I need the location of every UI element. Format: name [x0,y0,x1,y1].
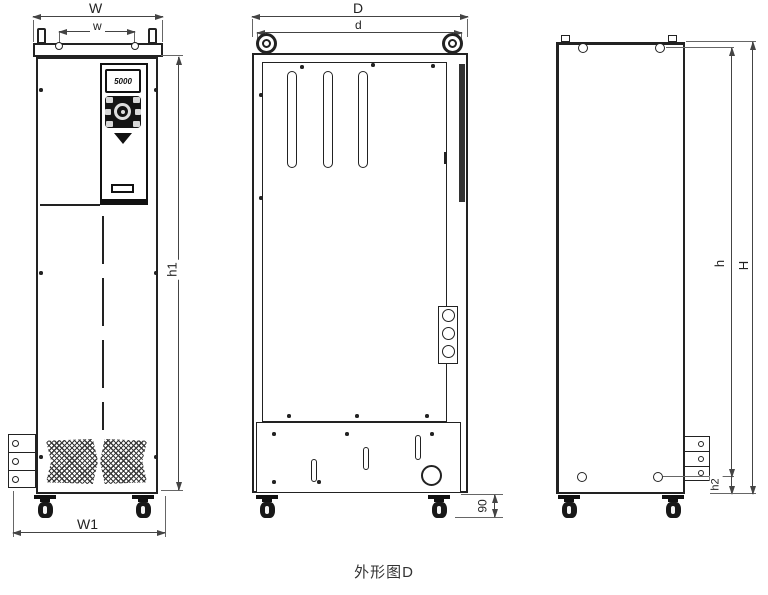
keypad-button [133,97,140,103]
mounting-hole [655,43,665,53]
keypad-button [133,121,140,127]
screw-dot [259,196,263,200]
dim-line-h [731,48,732,477]
dim-label-D: D [350,0,366,16]
dim-extension-line [686,41,756,42]
keypad-panel: 5000 [100,63,148,205]
caster-wheel-icon [130,495,156,519]
dim-extension-line [252,19,253,37]
arrow-right-icon [155,14,164,20]
vent-icon [46,439,98,484]
base-round-hole [421,465,442,486]
bracket-hole [12,440,19,447]
lifting-lug-icon [668,35,677,42]
dim-extension-line [467,19,468,37]
dim-line-W [33,16,163,17]
screw-dot [317,480,321,484]
caster-tire [432,502,447,518]
arrow-up-icon [750,41,756,50]
caster-wheel-icon [254,495,280,519]
rail-hole [131,42,139,50]
lifting-lug-icon [148,28,157,44]
knob-center-dot [121,110,125,114]
gland-hole [442,309,455,322]
arrow-left-icon [251,14,260,20]
screw-dot [39,88,43,92]
screw-dot [371,63,375,67]
caster-hub [671,506,675,514]
dim-label-w: w [90,19,105,33]
arrow-right-icon [460,14,469,20]
screw-dot [425,414,429,418]
arrow-right-icon [127,29,136,35]
caster-hub [437,506,441,514]
dim-line-90 [494,495,495,517]
screw-dot [154,271,158,275]
rear-cabinet-body [556,42,685,494]
screw-dot [430,432,434,436]
keypad-button [106,121,113,127]
bracket-hole [698,441,704,447]
arrow-down-icon [492,509,498,518]
screw-dot [345,432,349,436]
lifting-eye-inner [448,39,457,48]
base-slot [363,447,369,470]
vent-slot [287,71,297,168]
vent-slot [323,71,333,168]
bracket-divider [684,466,710,467]
screw-dot [287,414,291,418]
bracket-hole [698,456,704,462]
screw-dot [154,88,158,92]
arrow-up-icon [729,47,735,56]
dim-line-D [252,16,468,17]
caster-hub [265,506,269,514]
screw-dot [272,432,276,436]
dim-label-W: W [86,0,105,16]
dim-line-W1 [13,532,165,533]
dim-label-h: h [712,257,727,270]
dim-line-H [752,42,753,494]
door-hinge [459,64,465,202]
caster-hub [141,506,145,514]
mounting-hole [653,472,663,482]
bracket-divider [8,452,36,453]
vent-slot [358,71,368,168]
arrow-up-icon [492,494,498,503]
caster-wheel-icon [660,495,686,519]
dim-line-h2 [731,477,732,494]
keypad-button [135,109,141,115]
screw-dot [431,64,435,68]
keypad-knob-icon [114,103,131,120]
arrow-down-icon [176,482,182,491]
rail-hole [55,42,63,50]
lifting-eye-inner [262,39,271,48]
lifting-lug-icon [37,28,46,44]
arrow-left-icon [32,14,41,20]
screw-dot [259,93,263,97]
gland-hole [442,327,455,340]
caster-tire [38,502,53,518]
mounting-hole [577,472,587,482]
arrow-down-icon [750,486,756,495]
keypad-display: 5000 [105,69,141,93]
dim-line-d [257,32,462,33]
screw-dot [300,65,304,69]
arrow-left-icon [12,530,21,536]
caster-tire [136,502,151,518]
gland-hole [442,345,455,358]
arrow-right-icon [157,530,166,536]
caster-wheel-icon [426,495,452,519]
caster-tire [562,502,577,518]
arrow-left-icon [58,29,67,35]
lifting-lug-icon [561,35,570,42]
keypad-controls [105,96,141,128]
base-slot [415,435,421,460]
drawing-caption: 外形图D [0,561,768,582]
screw-dot [355,414,359,418]
bracket-divider [8,470,36,471]
keypad-arrow-icon [114,133,132,144]
outline-drawing-canvas: W w 5000 [0,0,768,595]
keypad-button [106,97,113,103]
caster-hub [43,506,47,514]
bracket-hole [12,458,19,465]
dim-label-d: d [352,18,365,32]
dim-extension-line [162,20,163,42]
dim-extension-line [663,476,734,477]
dim-extension-line [666,47,734,48]
caster-wheel-icon [556,495,582,519]
screw-dot [39,271,43,275]
bracket-hole [12,476,19,483]
caster-tire [260,502,275,518]
caster-tire [666,502,681,518]
dim-label-W1: W1 [74,516,101,532]
dim-label-H: H [736,258,751,273]
screw-dot [39,455,43,459]
arrow-up-icon [176,56,182,65]
dim-label-90: 90 [476,496,490,515]
screw-dot [272,480,276,484]
panel-slot [111,184,134,193]
dim-extension-line [33,20,34,42]
door-latch [444,152,447,164]
dim-label-h1: h1 [165,259,180,279]
dim-label-h2: h2 [710,475,723,493]
base-slot [311,459,317,482]
mounting-hole [578,43,588,53]
keypad-button [105,109,111,115]
bracket-divider [684,451,710,452]
display-value: 5000 [114,77,132,86]
screw-dot [154,455,158,459]
door-seam-line [40,204,100,206]
side-bracket [684,436,710,481]
top-rail [33,43,163,57]
vent-icon [100,439,147,484]
caster-hub [567,506,571,514]
caster-wheel-icon [32,495,58,519]
center-dashed-line [102,216,104,430]
